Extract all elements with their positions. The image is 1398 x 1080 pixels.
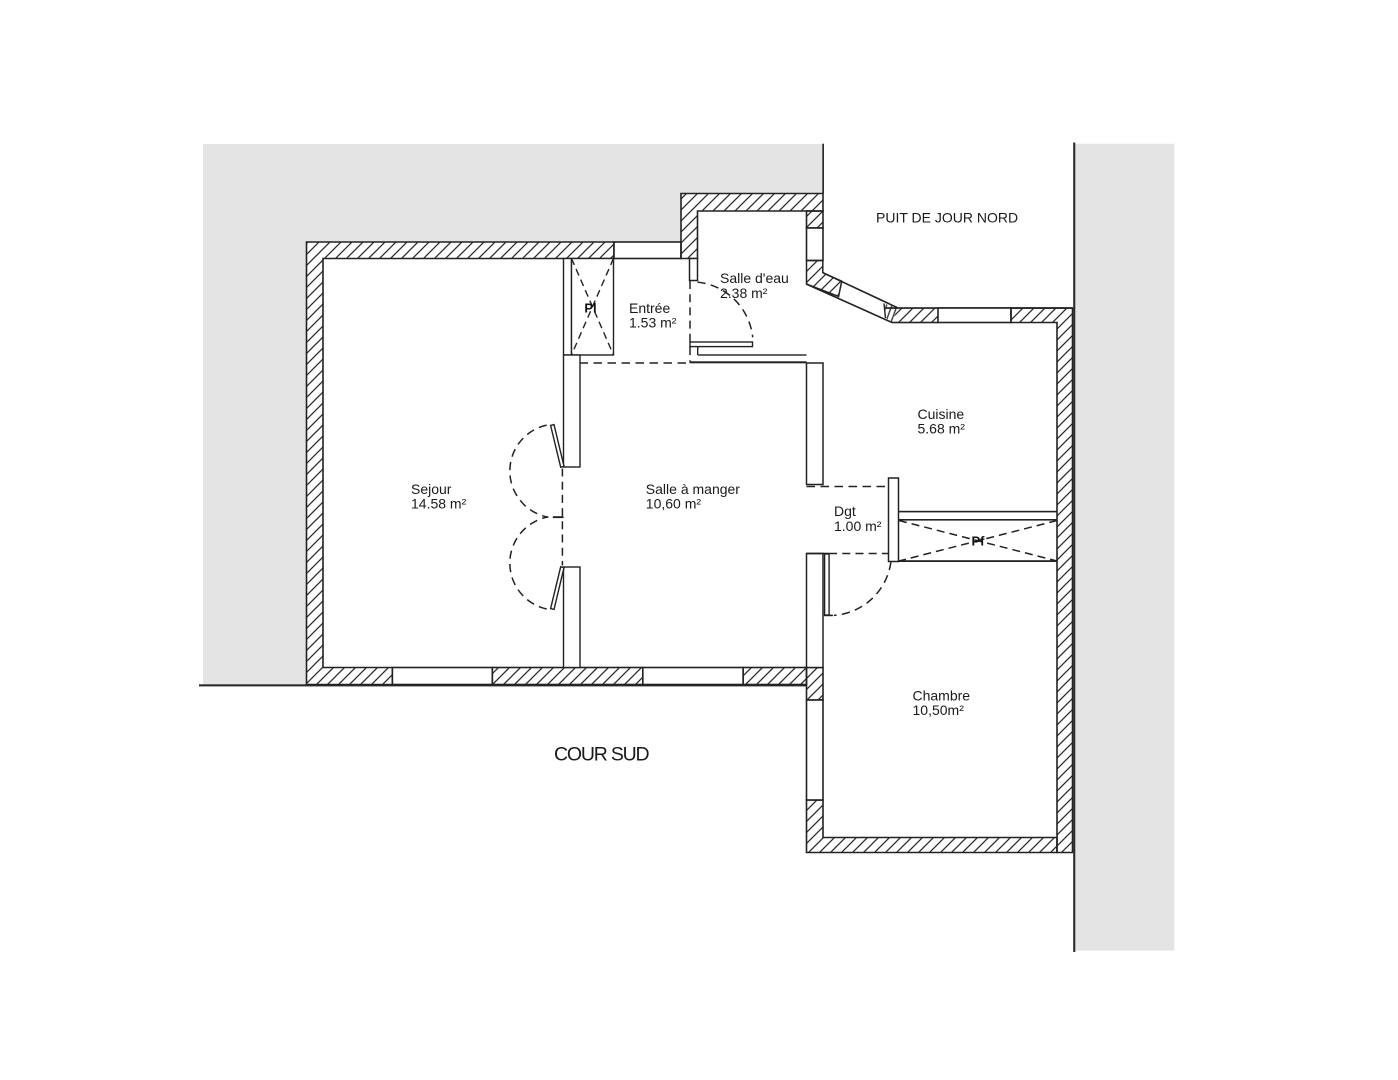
svg-text:2.38 m²: 2.38 m² (720, 285, 768, 301)
svg-text:1.53 m²: 1.53 m² (629, 315, 677, 331)
svg-text:Sejour: Sejour (411, 481, 452, 497)
svg-text:Pl: Pl (584, 301, 596, 316)
svg-text:5.68 m²: 5.68 m² (918, 421, 966, 437)
svg-text:Pf: Pf (972, 534, 986, 549)
svg-text:Cuisine: Cuisine (918, 406, 965, 422)
svg-text:10,60 m²: 10,60 m² (646, 496, 702, 512)
svg-text:Dgt: Dgt (834, 503, 856, 519)
svg-text:Salle à manger: Salle à manger (646, 481, 741, 497)
svg-text:Entrée: Entrée (629, 300, 670, 316)
svg-text:1.00 m²: 1.00 m² (834, 518, 882, 534)
svg-text:14.58 m²: 14.58 m² (411, 496, 467, 512)
svg-text:COUR SUD: COUR SUD (554, 744, 650, 766)
svg-text:Salle d'eau: Salle d'eau (720, 270, 789, 286)
svg-text:Chambre: Chambre (913, 687, 971, 703)
svg-text:PUIT DE JOUR NORD: PUIT DE JOUR NORD (876, 210, 1018, 226)
svg-text:10,50m²: 10,50m² (913, 702, 965, 718)
